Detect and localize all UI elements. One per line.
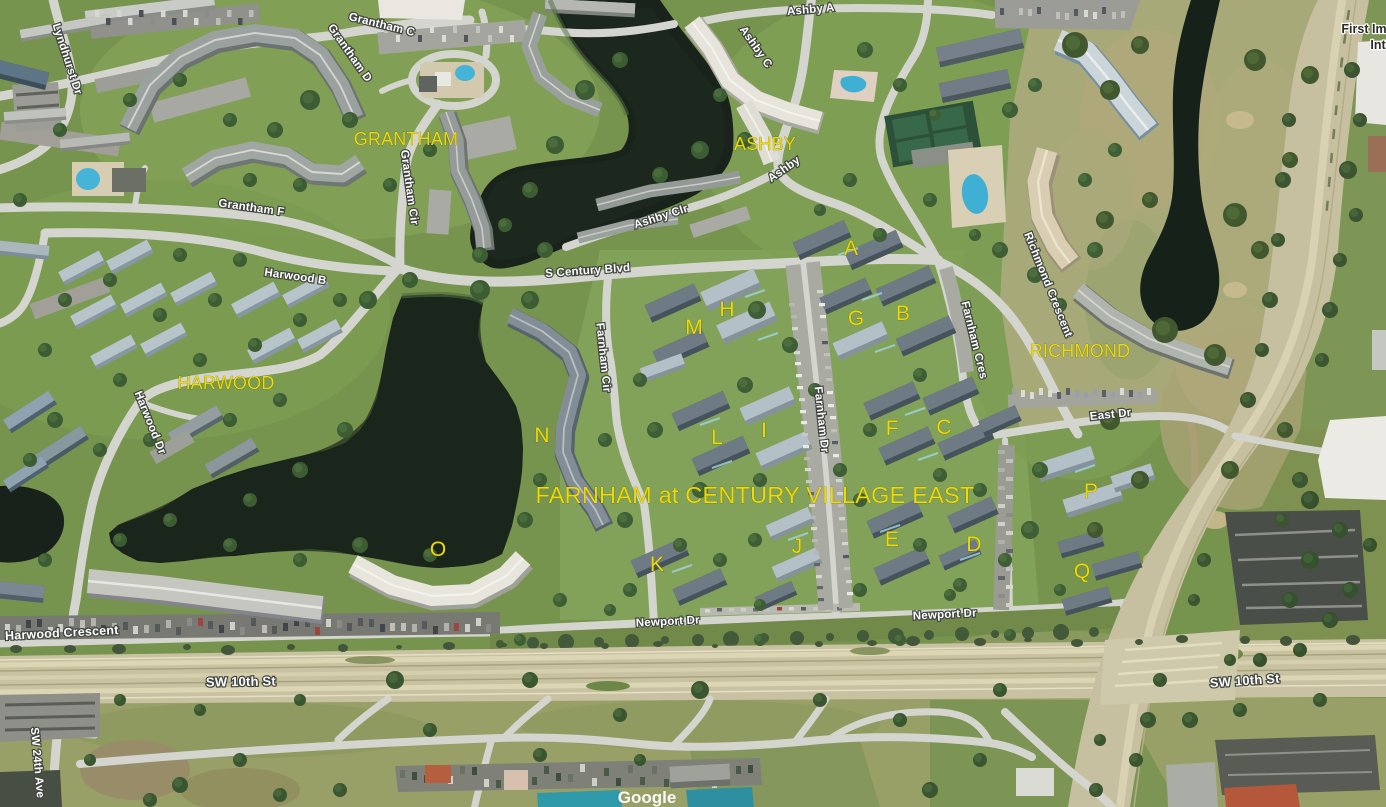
- svg-text:A: A: [844, 237, 858, 260]
- svg-text:SW 10th St: SW 10th St: [206, 673, 277, 689]
- svg-text:H: H: [719, 298, 734, 321]
- svg-text:L: L: [711, 426, 723, 449]
- svg-text:HARWOOD: HARWOOD: [177, 373, 274, 393]
- svg-text:Google: Google: [618, 788, 677, 807]
- svg-text:K: K: [650, 553, 664, 576]
- svg-text:N: N: [534, 424, 549, 447]
- svg-text:E: E: [885, 528, 899, 551]
- svg-text:F: F: [886, 417, 899, 440]
- svg-text:B: B: [896, 302, 910, 325]
- svg-text:Int: Int: [1370, 38, 1386, 52]
- svg-text:P: P: [1084, 480, 1098, 503]
- svg-text:ASHBY: ASHBY: [734, 134, 796, 154]
- svg-text:J: J: [792, 535, 803, 558]
- svg-text:I: I: [761, 419, 767, 442]
- svg-text:RICHMOND: RICHMOND: [1030, 341, 1131, 361]
- svg-text:FARNHAM at CENTURY VILLAGE EAS: FARNHAM at CENTURY VILLAGE EAST: [536, 482, 975, 508]
- svg-text:O: O: [430, 538, 446, 561]
- svg-text:First Im: First Im: [1341, 22, 1386, 36]
- svg-text:M: M: [685, 316, 703, 339]
- svg-text:Q: Q: [1074, 560, 1090, 583]
- svg-text:C: C: [936, 416, 951, 439]
- svg-text:G: G: [848, 307, 864, 330]
- svg-text:GRANTHAM: GRANTHAM: [354, 129, 459, 149]
- svg-text:D: D: [966, 533, 981, 556]
